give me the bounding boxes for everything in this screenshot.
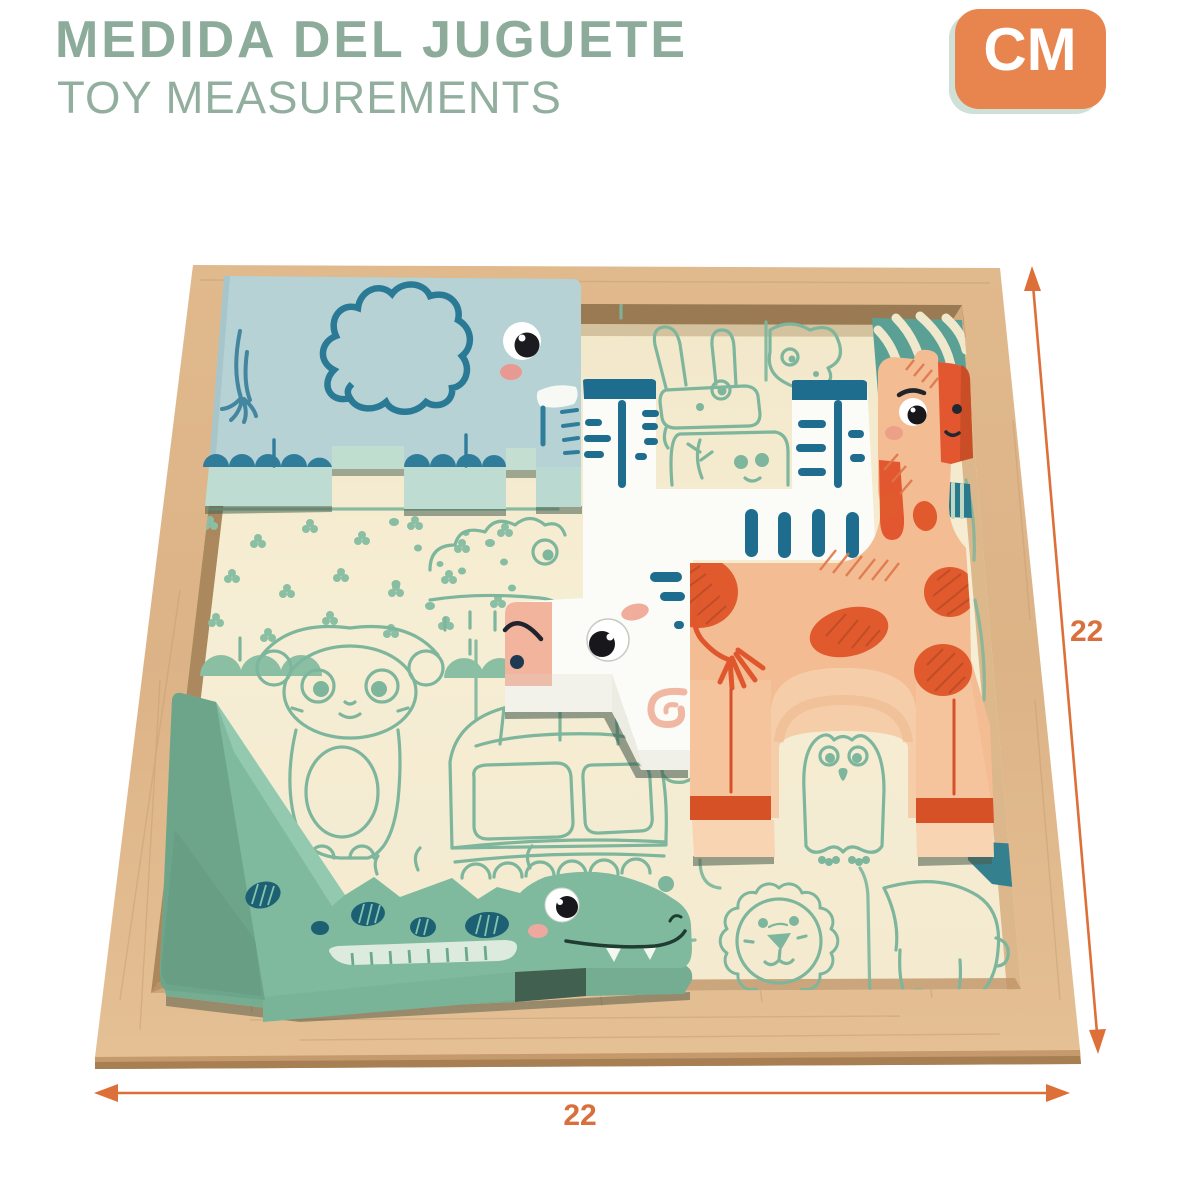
svg-text:22: 22 <box>563 1099 596 1132</box>
svg-text:TOY MEASUREMENTS: TOY MEASUREMENTS <box>57 72 562 123</box>
svg-text:MEDIDA DEL JUGUETE: MEDIDA DEL JUGUETE <box>55 11 688 69</box>
svg-text:22: 22 <box>1070 615 1103 648</box>
svg-text:CM: CM <box>983 16 1076 83</box>
